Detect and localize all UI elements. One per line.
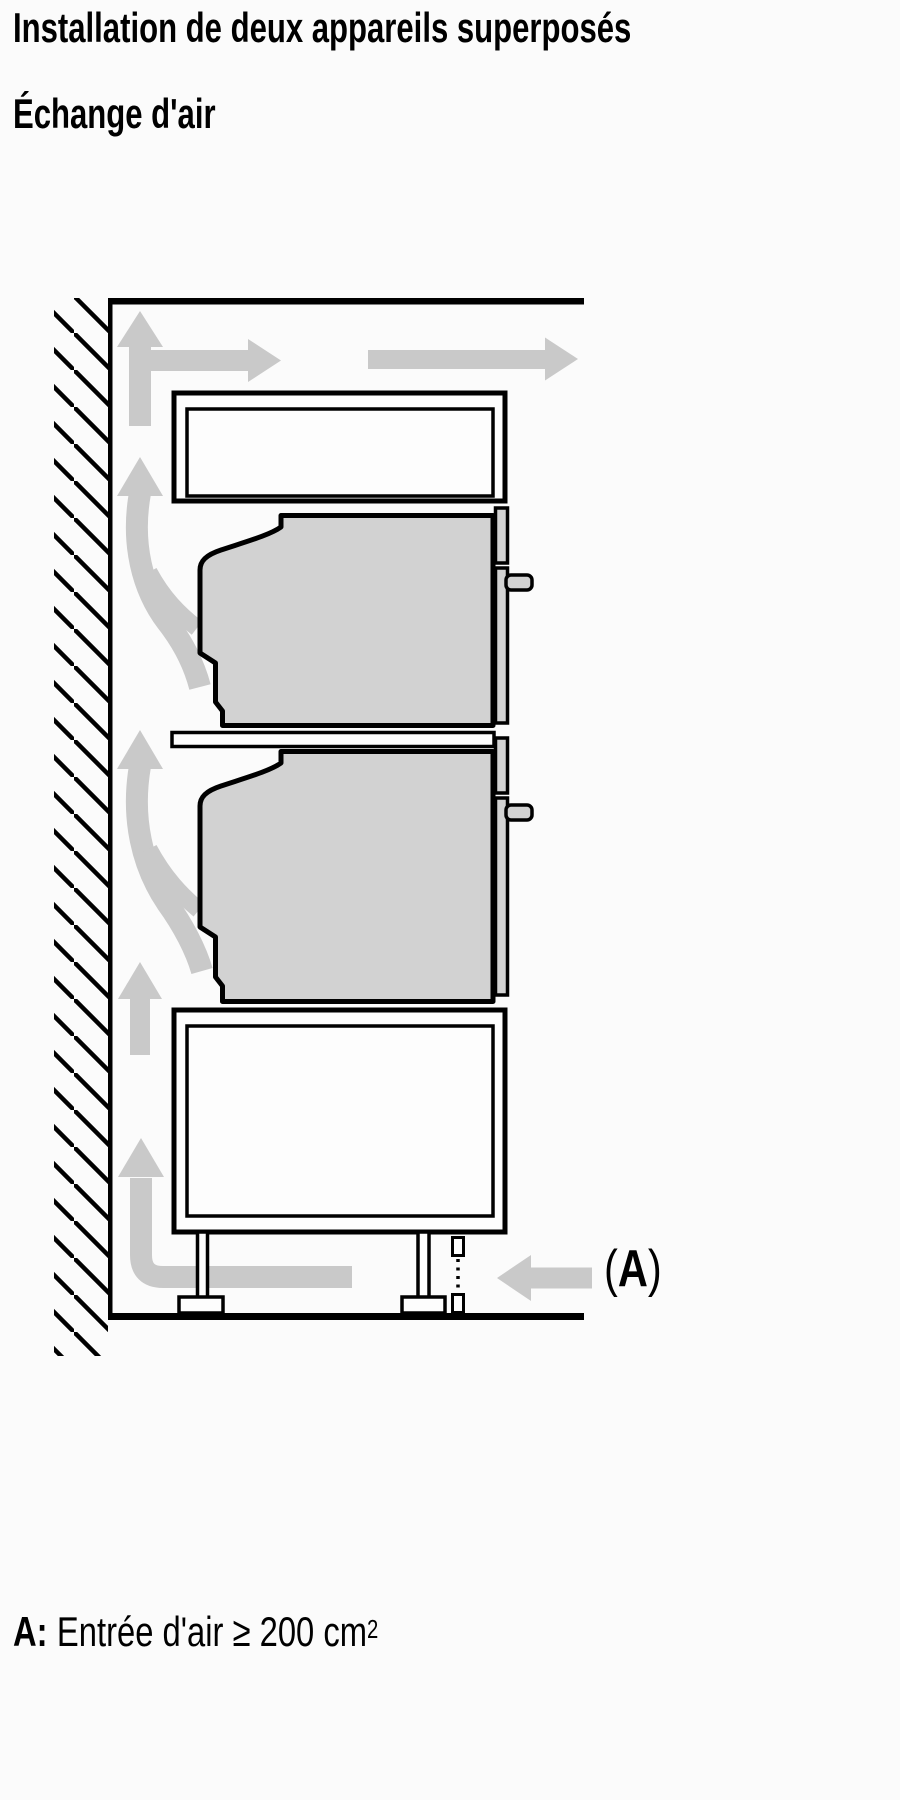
air-inlet-label-letter: A (618, 1240, 648, 1298)
legend-caption: A:Entrée d'air ≥ 200 cm2 (13, 1609, 378, 1655)
lower-oven-body (200, 752, 493, 1002)
air-inlet-label-paren-open: ( (604, 1240, 618, 1298)
left-foot-base (179, 1297, 223, 1313)
air-inlet-arrow-a (497, 1255, 592, 1301)
left-foot-shaft (198, 1232, 208, 1298)
lower-oven-door (496, 798, 508, 995)
wall-hatching (54, 298, 108, 1356)
air-exchange-diagram (0, 0, 900, 1800)
upper-oven-front (496, 508, 533, 723)
airflow-up-arrow-base (118, 962, 162, 1055)
right-foot-shaft (418, 1232, 429, 1298)
legend-text: Entrée d'air ≥ 200 cm (57, 1608, 367, 1655)
wall-line (108, 298, 113, 1320)
base-cabinet (174, 1010, 505, 1232)
upper-oven-door (496, 568, 508, 723)
airflow-curved-arrow-lower-oven (117, 730, 202, 971)
upper-oven-handle (506, 575, 532, 590)
airflow-right-arrow-ceiling (368, 338, 578, 381)
air-inlet-label-paren-close: ) (648, 1240, 662, 1298)
legend-superscript: 2 (367, 1614, 378, 1644)
upper-oven-body (200, 516, 493, 726)
ceiling-line (108, 298, 584, 305)
right-foot-base (402, 1297, 445, 1313)
upper-oven-control-panel (496, 508, 508, 563)
lower-oven-handle (506, 805, 532, 820)
intermediate-shelf (172, 733, 494, 747)
air-inlet-label: (A) (604, 1243, 662, 1295)
legend-key: A: (13, 1608, 48, 1655)
lower-oven-front (496, 738, 533, 995)
lower-oven-control-panel (496, 738, 508, 793)
upper-cabinet (174, 393, 505, 501)
plinth-vent-detail (453, 1238, 464, 1313)
